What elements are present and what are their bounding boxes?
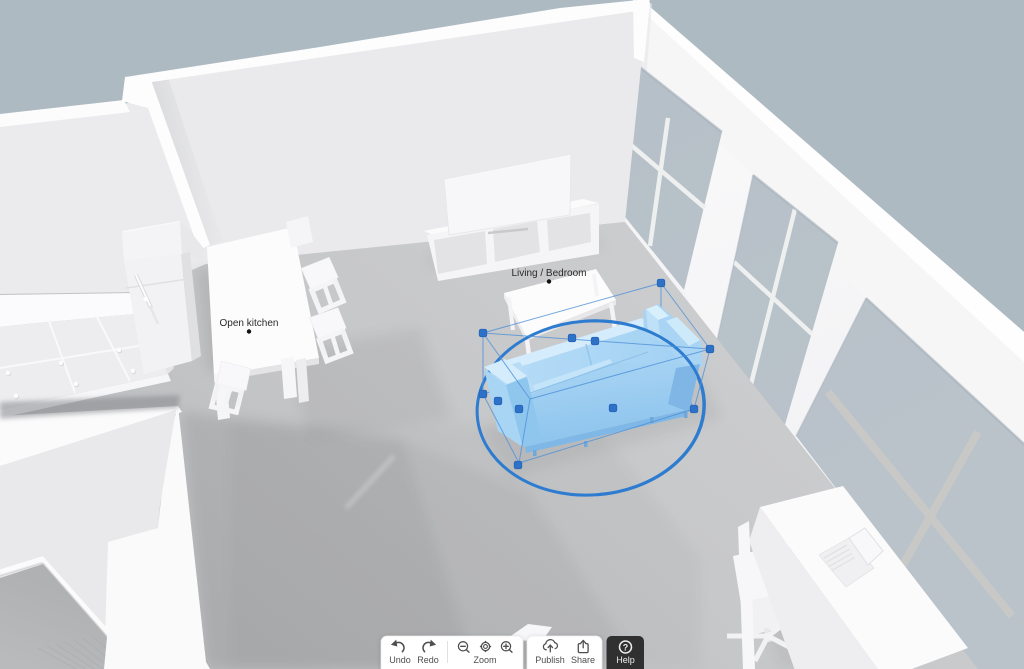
svg-text:Publish: Publish [535, 655, 565, 665]
svg-text:Redo: Redo [417, 655, 439, 665]
svg-text:Share: Share [571, 655, 595, 665]
svg-text:Help: Help [616, 655, 635, 665]
svg-text:?: ? [623, 642, 629, 652]
svg-text:Open kitchen: Open kitchen [220, 318, 279, 329]
svg-text:Zoom: Zoom [473, 655, 496, 665]
svg-text:Undo: Undo [389, 655, 411, 665]
svg-text:Living / Bedroom: Living / Bedroom [511, 268, 586, 279]
